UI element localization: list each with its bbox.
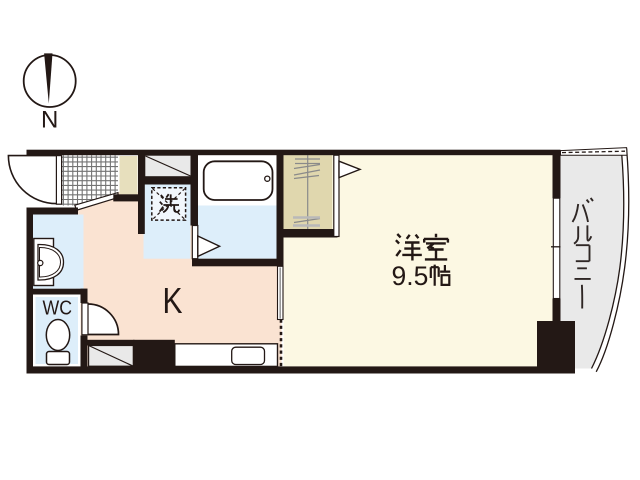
svg-text:K: K — [163, 280, 183, 321]
svg-text:WC: WC — [43, 297, 73, 320]
svg-text:9.5: 9.5 — [392, 261, 429, 291]
svg-text:N: N — [41, 107, 58, 134]
